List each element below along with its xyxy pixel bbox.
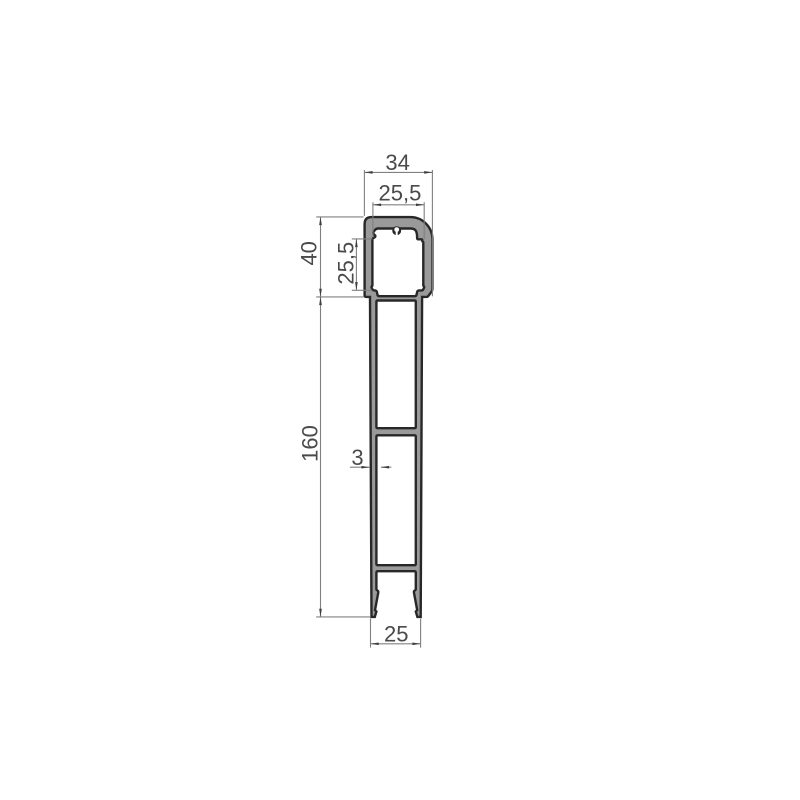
svg-text:25,5: 25,5 bbox=[378, 181, 421, 206]
svg-text:25,5: 25,5 bbox=[334, 242, 359, 285]
svg-text:160: 160 bbox=[298, 425, 323, 462]
svg-text:3: 3 bbox=[351, 445, 363, 470]
svg-text:25: 25 bbox=[384, 621, 408, 646]
svg-text:34: 34 bbox=[385, 150, 409, 175]
svg-text:40: 40 bbox=[297, 241, 322, 265]
